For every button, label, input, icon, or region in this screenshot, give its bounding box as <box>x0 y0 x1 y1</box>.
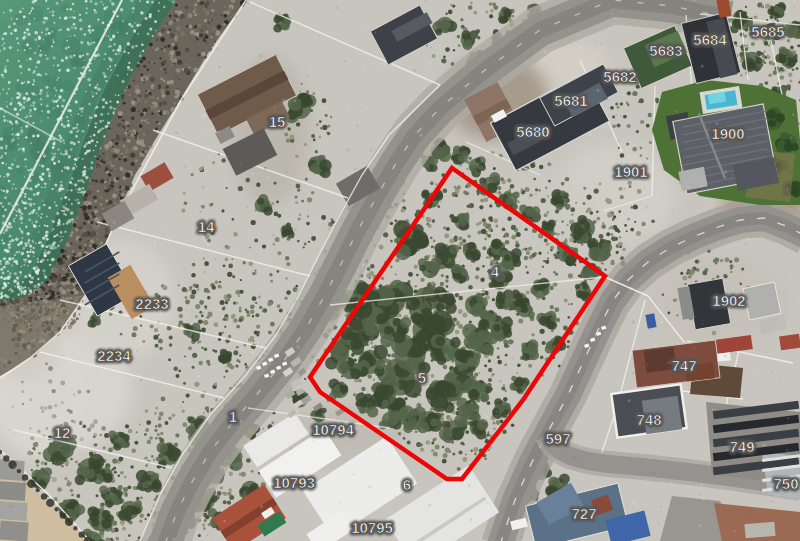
svg-text:4: 4 <box>491 263 500 280</box>
svg-text:1: 1 <box>229 408 237 425</box>
svg-text:1900: 1900 <box>711 125 744 142</box>
svg-text:5682: 5682 <box>603 68 636 85</box>
svg-text:748: 748 <box>636 411 661 428</box>
svg-text:1902: 1902 <box>712 292 745 309</box>
svg-text:747: 747 <box>671 357 696 374</box>
svg-text:749: 749 <box>729 438 754 455</box>
svg-text:12: 12 <box>54 424 71 441</box>
svg-text:6: 6 <box>403 476 411 493</box>
svg-text:14: 14 <box>198 218 215 235</box>
svg-text:10793: 10793 <box>273 474 315 491</box>
svg-text:10794: 10794 <box>312 421 354 438</box>
svg-text:727: 727 <box>571 505 596 522</box>
svg-text:15: 15 <box>269 113 286 130</box>
svg-text:1901: 1901 <box>614 163 647 180</box>
svg-text:5681: 5681 <box>554 92 587 109</box>
svg-text:5685: 5685 <box>751 23 784 40</box>
svg-text:2234: 2234 <box>97 347 131 364</box>
svg-text:2233: 2233 <box>135 295 168 312</box>
svg-text:5: 5 <box>418 369 426 386</box>
svg-text:10795: 10795 <box>351 519 393 536</box>
svg-text:5683: 5683 <box>649 42 682 59</box>
svg-text:597: 597 <box>545 430 570 447</box>
svg-text:5684: 5684 <box>693 31 727 48</box>
svg-text:750: 750 <box>773 475 798 492</box>
svg-text:5680: 5680 <box>516 123 549 140</box>
